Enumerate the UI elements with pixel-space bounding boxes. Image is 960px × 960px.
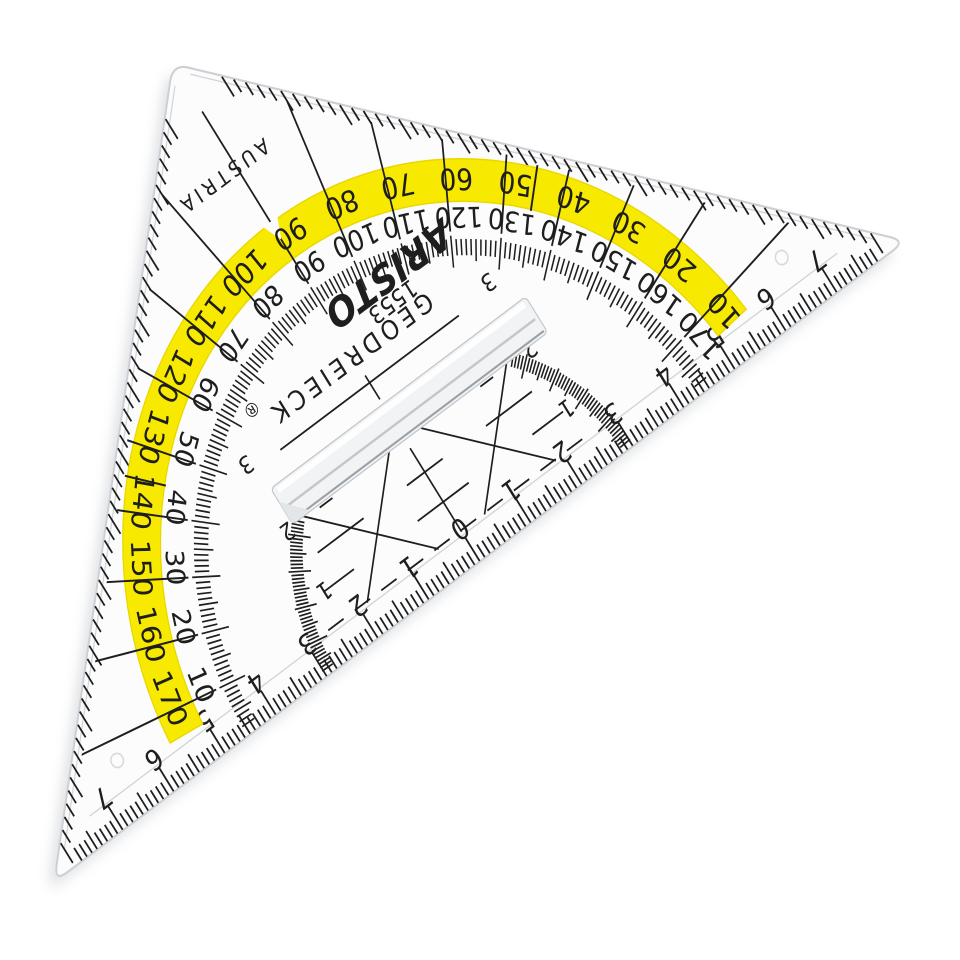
degree-inner-20: 20 xyxy=(165,607,201,649)
degree-outer-140: 140 xyxy=(124,471,160,533)
degree-outer-150: 150 xyxy=(124,539,158,596)
degree-outer-60: 60 xyxy=(438,161,474,197)
degree-inner-30: 30 xyxy=(159,549,190,586)
geodreieck-ruler: 7654321012345671122331020304050607080901… xyxy=(0,0,902,888)
degree-outer-50: 50 xyxy=(497,163,534,203)
geodreieck-ruler-photo: 7654321012345671122331020304050607080901… xyxy=(0,0,960,960)
degree-inner-130: 130 xyxy=(487,200,538,241)
photo-stage: 7654321012345671122331020304050607080901… xyxy=(0,0,960,960)
degree-inner-40: 40 xyxy=(159,487,191,528)
degree-outer-70: 70 xyxy=(378,165,418,206)
